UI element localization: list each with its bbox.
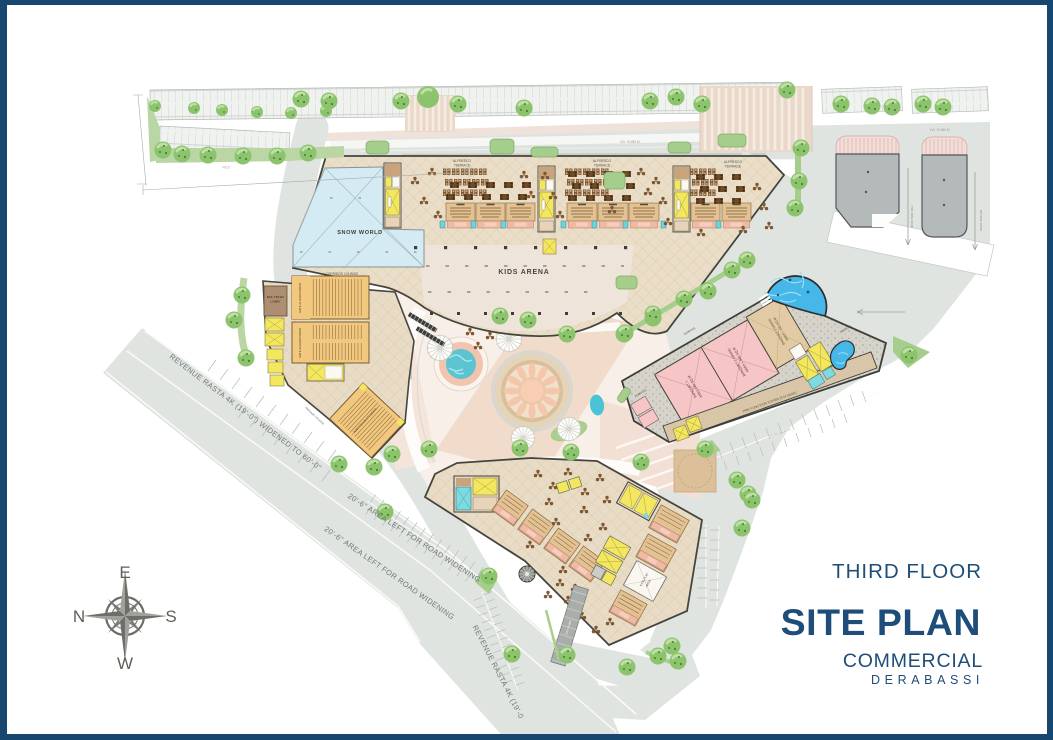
svg-text:ALFRESCO: ALFRESCO xyxy=(453,159,472,163)
svg-text:SNOW WORLD: SNOW WORLD xyxy=(337,230,382,236)
svg-text:7.5M WIDE ROAD: 7.5M WIDE ROAD xyxy=(910,205,914,228)
svg-text:COMMERCIAL: COMMERCIAL xyxy=(843,650,983,672)
svg-text:LVL +0.450 M: LVL +0.450 M xyxy=(930,128,950,132)
svg-text:W: W xyxy=(117,654,133,673)
svg-text:CORRIDOR 3 M WIDE: CORRIDOR 3 M WIDE xyxy=(326,272,359,276)
svg-text:S: S xyxy=(165,607,176,626)
svg-text:TERRACE: TERRACE xyxy=(454,164,471,168)
svg-text:KIDS ARENA: KIDS ARENA xyxy=(498,269,549,276)
svg-text:THIRD FLOOR: THIRD FLOOR xyxy=(832,560,982,583)
svg-text:TERRACE: TERRACE xyxy=(725,165,742,169)
svg-text:ALFRESCO: ALFRESCO xyxy=(593,159,612,163)
svg-text:GATE #1 AUDITORIUM: GATE #1 AUDITORIUM xyxy=(298,283,302,313)
svg-text:MUL TIPLEX: MUL TIPLEX xyxy=(267,295,284,299)
svg-text:LVL +0.450 M: LVL +0.450 M xyxy=(620,140,640,144)
svg-text:9M WIDE ROAD: 9M WIDE ROAD xyxy=(979,210,983,231)
svg-text:SITE PLAN: SITE PLAN xyxy=(781,601,981,643)
svg-text:DERABASSI: DERABASSI xyxy=(871,673,984,687)
svg-text:LOBBY: LOBBY xyxy=(270,300,280,304)
svg-text:N: N xyxy=(73,607,85,626)
svg-text:TERRACE: TERRACE xyxy=(594,164,611,168)
svg-text:GATE #2 AUDITORIUM: GATE #2 AUDITORIUM xyxy=(298,328,302,358)
svg-text:ALFRESCO: ALFRESCO xyxy=(724,160,743,164)
svg-text:102.5: 102.5 xyxy=(222,165,230,170)
svg-text:E: E xyxy=(119,563,130,582)
